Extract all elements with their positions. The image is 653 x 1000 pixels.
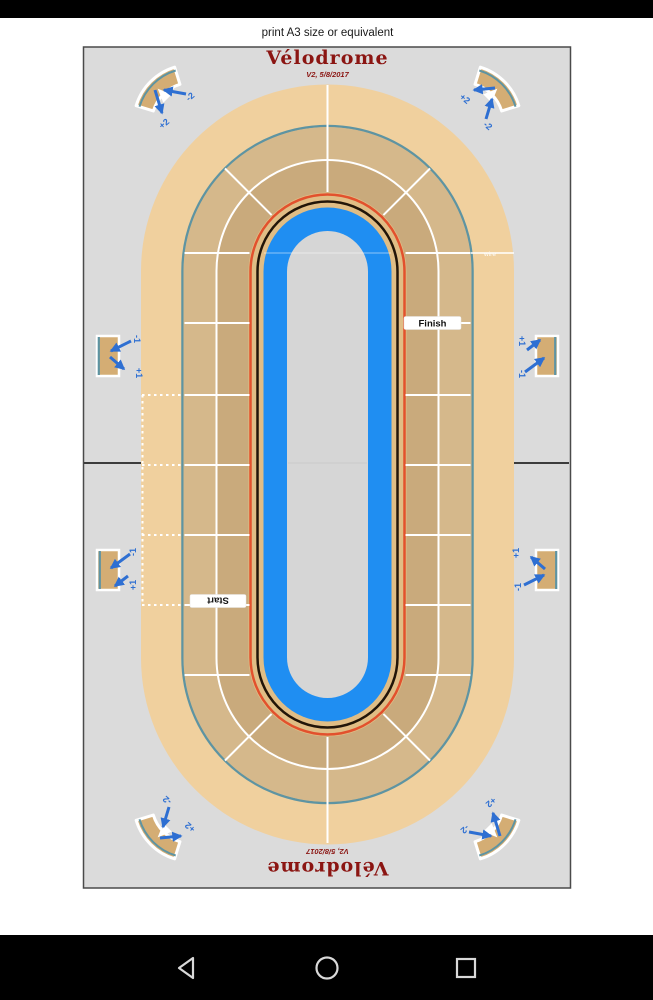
side-bonus-label: +1 — [517, 336, 527, 346]
home-circle-icon — [316, 957, 337, 978]
arrow-plus2-out — [160, 836, 181, 838]
arrow-plus2-out — [474, 88, 495, 90]
android-nav-bar — [0, 935, 653, 1000]
board-title-bottom: Vélodrome — [266, 857, 389, 879]
side-penalty-label: -1 — [132, 335, 142, 343]
finish-label: Finish — [419, 319, 447, 330]
side-penalty-label: -1 — [128, 548, 138, 556]
side-bonus-label: +1 — [134, 368, 144, 378]
board-version-bottom: V2, 5/8/2017 — [305, 847, 348, 856]
side-bonus-label: +1 — [128, 580, 138, 590]
finish-marker: Finish — [404, 317, 461, 330]
side-penalty-label: -1 — [517, 370, 527, 378]
home-button[interactable] — [314, 955, 340, 981]
track-infield — [287, 231, 368, 698]
back-triangle-icon — [179, 958, 193, 978]
back-button[interactable] — [175, 955, 201, 981]
wire-label: wire — [483, 251, 496, 258]
status-bar — [0, 0, 653, 18]
side-bonus-label: +1 — [511, 548, 521, 558]
print-size-note: print A3 size or equivalent — [262, 27, 394, 39]
side-penalty-label: -1 — [513, 583, 523, 591]
recents-button[interactable] — [453, 955, 479, 981]
velodrome-sheet: print A3 size or equivalent — [0, 18, 653, 935]
start-label: Start — [206, 595, 228, 606]
start-marker: Start — [190, 595, 246, 608]
board-version: V2, 5/8/2017 — [306, 70, 349, 79]
side-tab-shape — [97, 336, 119, 376]
recents-square-icon — [457, 959, 475, 977]
document-view: print A3 size or equivalent — [0, 18, 653, 935]
side-tab-shape — [536, 550, 558, 590]
board-title: Vélodrome — [265, 47, 388, 69]
